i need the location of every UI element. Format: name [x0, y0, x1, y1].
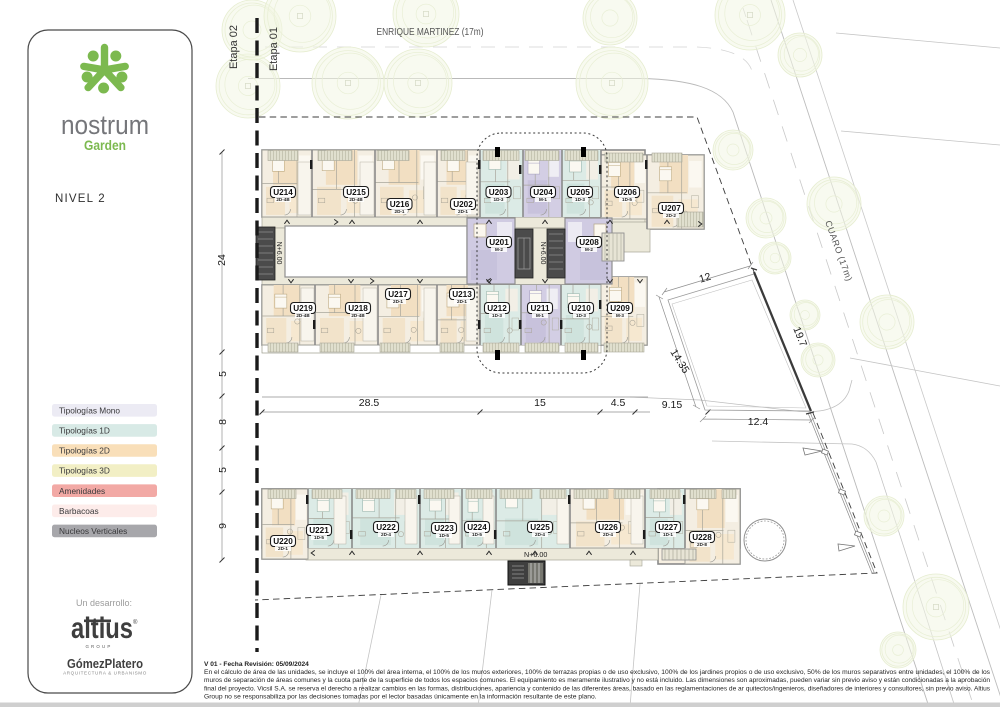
svg-text:U202: U202 [453, 200, 473, 209]
svg-text:M-3: M-3 [616, 313, 624, 318]
svg-text:U221: U221 [309, 526, 329, 535]
svg-text:2D-1: 2D-1 [395, 209, 405, 214]
svg-text:U203: U203 [489, 188, 509, 197]
svg-text:U211: U211 [530, 304, 550, 313]
svg-text:1D-3: 1D-3 [492, 313, 502, 318]
svg-text:N+6.00: N+6.00 [539, 242, 546, 265]
svg-text:N+6.00: N+6.00 [275, 242, 282, 265]
svg-text:U227: U227 [658, 523, 678, 532]
svg-text:U206: U206 [617, 188, 637, 197]
svg-text:U214: U214 [273, 188, 293, 197]
svg-text:Nucleos Verticales: Nucleos Verticales [59, 526, 127, 536]
svg-text:U222: U222 [376, 523, 396, 532]
svg-text:U218: U218 [348, 304, 368, 313]
svg-text:U204: U204 [533, 188, 553, 197]
svg-text:8: 8 [217, 419, 229, 425]
svg-text:Barbacoas: Barbacoas [59, 506, 99, 516]
svg-text:2D-4: 2D-4 [535, 532, 545, 537]
svg-text:U209: U209 [610, 304, 630, 313]
svg-text:NIVEL 2: NIVEL 2 [55, 193, 106, 205]
svg-text:2D-1: 2D-1 [278, 546, 288, 551]
svg-text:En el cálculo de área de las u: En el cálculo de área de las unidades, s… [204, 669, 991, 676]
svg-text:1D-1: 1D-1 [663, 532, 673, 537]
svg-text:2D-4B: 2D-4B [351, 313, 365, 318]
svg-text:U219: U219 [293, 304, 313, 313]
svg-text:2D-4: 2D-4 [603, 532, 613, 537]
svg-text:5: 5 [217, 467, 229, 473]
svg-text:2D-4: 2D-4 [381, 532, 391, 537]
svg-text:U201: U201 [489, 238, 509, 247]
svg-text:ARQUITECTURA & URBANISMO: ARQUITECTURA & URBANISMO [63, 671, 147, 676]
svg-text:muros de separación de áreas c: muros de separación de áreas comunes y l… [204, 677, 990, 684]
svg-text:2D-1: 2D-1 [393, 299, 403, 304]
svg-text:1D-3: 1D-3 [575, 197, 585, 202]
svg-text:U217: U217 [388, 290, 408, 299]
svg-text:Garden: Garden [84, 138, 126, 153]
svg-text:Tipologías 2D: Tipologías 2D [59, 446, 110, 456]
svg-text:Tipologías 3D: Tipologías 3D [59, 466, 110, 476]
svg-text:M-2: M-2 [495, 247, 503, 252]
svg-text:Etapa 01: Etapa 01 [268, 27, 280, 71]
svg-text:5: 5 [217, 371, 229, 377]
svg-text:28.5: 28.5 [359, 397, 380, 409]
svg-text:2D-4B: 2D-4B [276, 197, 290, 202]
svg-text:U223: U223 [434, 524, 454, 533]
svg-text:9: 9 [217, 523, 229, 529]
svg-text:2D-4B: 2D-4B [349, 197, 363, 202]
svg-text:M-1: M-1 [539, 197, 547, 202]
svg-text:4.5: 4.5 [611, 397, 626, 409]
svg-text:1D-3: 1D-3 [494, 197, 504, 202]
svg-text:Un desarrollo:: Un desarrollo: [76, 598, 132, 608]
svg-text:U224: U224 [467, 523, 487, 532]
svg-text:1D-5: 1D-5 [314, 535, 324, 540]
svg-text:U212: U212 [487, 304, 507, 313]
svg-text:U208: U208 [579, 238, 599, 247]
svg-text:®: ® [133, 619, 138, 626]
svg-text:Amenidades: Amenidades [59, 486, 105, 496]
svg-text:U226: U226 [598, 523, 618, 532]
svg-text:2D-2: 2D-2 [666, 213, 676, 218]
svg-text:1D-5: 1D-5 [472, 532, 482, 537]
svg-text:U207: U207 [661, 204, 681, 213]
svg-text:2D-4B: 2D-4B [296, 313, 310, 318]
svg-text:9.15: 9.15 [662, 399, 683, 411]
svg-text:U225: U225 [530, 523, 550, 532]
svg-text:ENRIQUE MARTINEZ (17m): ENRIQUE MARTINEZ (17m) [377, 27, 484, 38]
svg-text:M-2: M-2 [585, 247, 593, 252]
svg-text:U213: U213 [452, 290, 472, 299]
svg-text:U205: U205 [570, 188, 590, 197]
svg-text:1D-5: 1D-5 [622, 197, 632, 202]
svg-text:Group no se responsabiliza por: Group no se responsabiliza por las decis… [204, 694, 597, 701]
svg-text:final del proyecto. Vicsil S.A: final del proyecto. Vicsil S.A. se reser… [204, 686, 991, 693]
svg-text:V 01 - Fecha Revisión: 05/09/2: V 01 - Fecha Revisión: 05/09/2024 [204, 661, 309, 668]
svg-text:altius: altius [71, 612, 133, 645]
svg-text:nostrum: nostrum [61, 110, 149, 140]
svg-text:12.4: 12.4 [748, 416, 769, 428]
svg-text:1D-5: 1D-5 [439, 533, 449, 538]
svg-text:2D-8: 2D-8 [697, 542, 707, 547]
svg-text:1D-3: 1D-3 [576, 313, 586, 318]
svg-text:U220: U220 [273, 537, 293, 546]
svg-text:N+6.00: N+6.00 [524, 550, 547, 559]
svg-text:U215: U215 [346, 188, 366, 197]
svg-text:15: 15 [534, 397, 546, 409]
svg-text:Etapa 02: Etapa 02 [228, 25, 240, 69]
svg-text:24: 24 [216, 254, 228, 266]
svg-text:Tipologías Mono: Tipologías Mono [59, 405, 120, 415]
svg-text:GómezPlatero: GómezPlatero [67, 657, 143, 671]
svg-text:2D-1: 2D-1 [458, 209, 468, 214]
svg-text:U216: U216 [390, 200, 410, 209]
svg-text:Tipologías 1D: Tipologías 1D [59, 426, 110, 436]
svg-text:M-1: M-1 [536, 313, 544, 318]
svg-text:2D-1: 2D-1 [457, 299, 467, 304]
svg-text:GROUP: GROUP [85, 644, 112, 649]
svg-text:U210: U210 [571, 304, 591, 313]
svg-text:U228: U228 [692, 533, 712, 542]
